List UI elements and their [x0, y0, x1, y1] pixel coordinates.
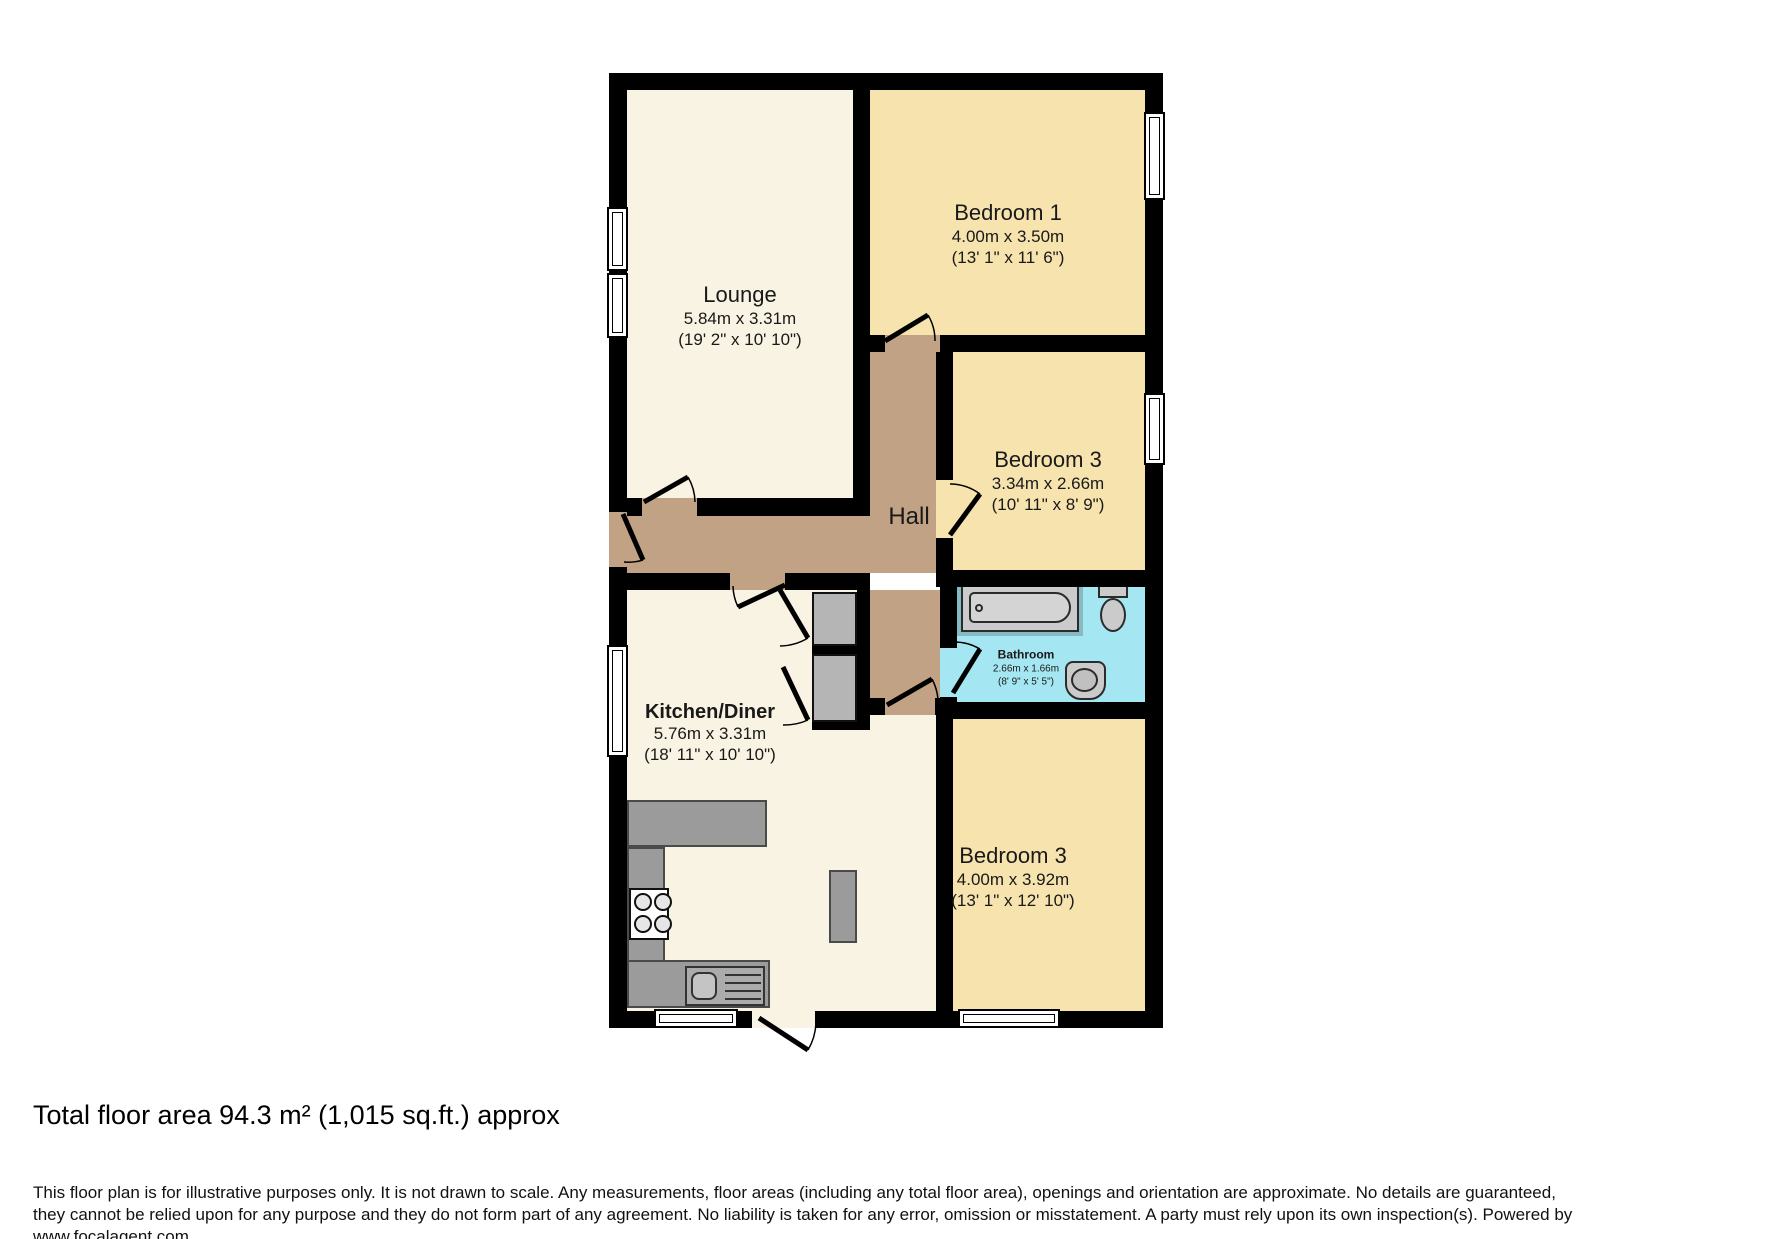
- door-leaf: [644, 477, 688, 502]
- room-dims-imperial: (10' 11" x 8' 9"): [992, 494, 1105, 515]
- bathroom-door: [953, 642, 980, 693]
- room-dims-metric: 5.84m x 3.31m: [678, 309, 801, 330]
- room-dims-metric: 4.00m x 3.92m: [951, 870, 1074, 891]
- kitchen-door: [733, 585, 785, 607]
- kitchen-diner-label: Kitchen/Diner 5.76m x 3.31m (18' 11" x 1…: [644, 700, 776, 766]
- door-arc: [932, 679, 938, 706]
- bedroom3-bottom-label: Bedroom 3 4.00m x 3.92m (13' 1" x 12' 10…: [951, 843, 1074, 911]
- room-name: Kitchen/Diner: [644, 700, 776, 724]
- room-dims-metric: 3.34m x 2.66m: [992, 474, 1105, 495]
- floor-plan: Lounge 5.84m x 3.31m (19' 2" x 10' 10") …: [609, 73, 1163, 1028]
- door-arc: [733, 586, 738, 607]
- room-dims-imperial: (13' 1" x 11' 6"): [952, 247, 1065, 268]
- bedroom1-label: Bedroom 1 4.00m x 3.50m (13' 1" x 11' 6"…: [952, 200, 1065, 268]
- cupboard-door-upper: [780, 590, 808, 646]
- disclaimer-text: This floor plan is for illustrative purp…: [33, 1182, 1749, 1239]
- floorplan-page: Lounge 5.84m x 3.31m (19' 2" x 10' 10") …: [0, 0, 1771, 1239]
- door-leaf: [885, 315, 928, 341]
- door-leaf: [623, 514, 643, 560]
- room-dims-imperial: (19' 2" x 10' 10"): [678, 329, 801, 350]
- bedroom3-middle-label: Bedroom 3 3.34m x 2.66m (10' 11" x 8' 9"…: [992, 447, 1105, 515]
- room-dims-metric: 5.76m x 3.31m: [644, 724, 776, 745]
- door-arc: [624, 560, 643, 562]
- lounge-label: Lounge 5.84m x 3.31m (19' 2" x 10' 10"): [678, 282, 801, 350]
- door-leaf: [950, 494, 980, 535]
- door-arc: [954, 642, 980, 649]
- door-leaf: [783, 667, 808, 720]
- room-dims-metric: 4.00m x 3.50m: [952, 227, 1065, 248]
- hall-label: Hall: [888, 503, 929, 531]
- cupboard-door-lower: [783, 667, 808, 725]
- room-name: Bedroom 3: [992, 447, 1105, 474]
- door-leaf: [759, 1018, 808, 1050]
- door-leaf: [953, 649, 980, 693]
- bedroom3-bottom-door: [887, 679, 938, 706]
- room-dims-metric: 2.66m x 1.66m: [993, 662, 1059, 675]
- door-leaf: [738, 585, 785, 607]
- room-name: Lounge: [678, 282, 801, 309]
- door-layer: [609, 73, 1163, 1028]
- room-name: Bathroom: [993, 648, 1059, 663]
- room-name: Bedroom 3: [951, 843, 1074, 870]
- front-door: [623, 514, 643, 562]
- door-leaf: [887, 679, 932, 705]
- bedroom1-door: [885, 315, 935, 341]
- room-dims-imperial: (18' 11" x 10' 10"): [644, 745, 776, 766]
- room-dims-imperial: (8' 9" x 5' 5"): [993, 675, 1059, 688]
- door-arc: [950, 484, 980, 494]
- room-dims-imperial: (13' 1" x 12' 10"): [951, 890, 1074, 911]
- door-arc: [780, 638, 808, 646]
- room-name: Hall: [888, 503, 929, 530]
- door-arc: [928, 315, 935, 341]
- total-floor-area: Total floor area 94.3 m² (1,015 sq.ft.) …: [33, 1100, 560, 1131]
- back-door: [759, 1018, 816, 1050]
- door-arc: [808, 1023, 816, 1050]
- bathroom-label: Bathroom 2.66m x 1.66m (8' 9" x 5' 5"): [993, 648, 1059, 689]
- door-arc: [688, 477, 695, 502]
- room-name: Bedroom 1: [952, 200, 1065, 227]
- bedroom3-middle-door: [950, 484, 980, 535]
- door-leaf: [780, 590, 808, 638]
- door-arc: [783, 720, 808, 725]
- lounge-door: [644, 477, 695, 502]
